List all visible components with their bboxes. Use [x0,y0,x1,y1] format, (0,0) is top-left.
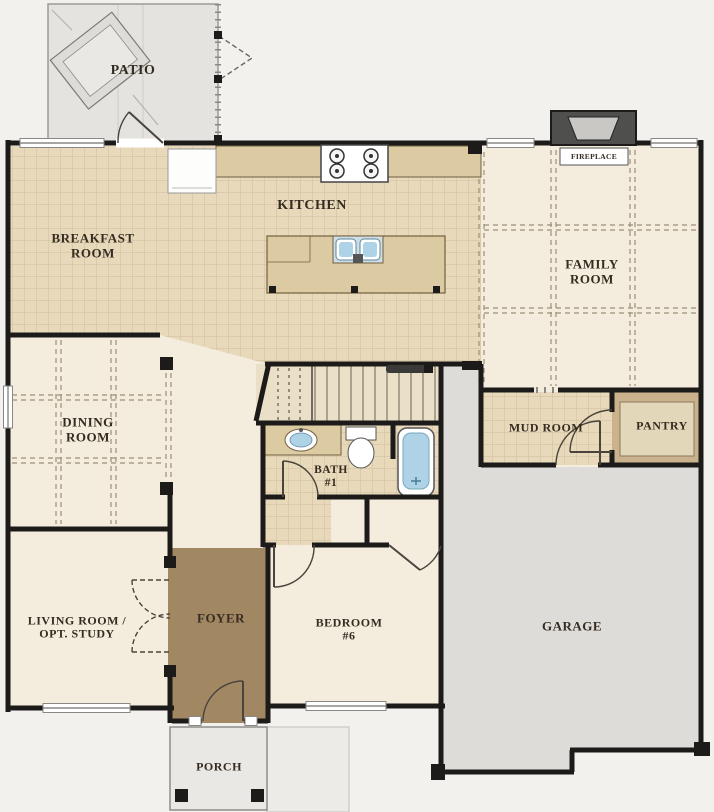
window [43,704,130,713]
room-label-family: FAMILYROOM [565,257,619,286]
bath-hall-floor [261,499,331,545]
room-label-mudroom: MUD ROOM [509,421,583,434]
stove-fixture [321,145,388,182]
room-label-living: LIVING ROOM /OPT. STUDY [28,615,127,642]
room-label-garage: GARAGE [542,620,602,635]
kitchen-island [267,236,445,293]
room-label-fireplace: FIREPLACE [571,153,617,161]
room-label-foyer: FOYER [197,612,245,627]
room-label-dining: DININGROOM [62,415,113,444]
window [651,139,697,148]
porch-column [175,789,188,802]
room-label-bath1: BATH#1 [314,464,348,490]
room-label-breakfast: BREAKFASTROOM [52,231,135,260]
walkway [267,727,349,812]
window [306,702,386,711]
room-label-porch: PORCH [196,760,242,773]
stair-handrail [386,364,433,373]
window [4,386,13,428]
refrigerator-fixture [168,149,216,193]
foyer-floor [168,548,268,723]
floor-plan-drawing [0,0,714,812]
room-label-pantry: PANTRY [636,419,688,432]
floor-plan: PATIO BREAKFASTROOM KITCHEN FAMILYROOM F… [0,0,714,812]
patio-screen-door [219,36,252,80]
bathtub-fixture [398,428,434,496]
kitchen-sink-fixture [333,236,383,263]
room-label-kitchen: KITCHEN [277,198,347,214]
window [20,139,104,148]
toilet-fixture [346,427,376,468]
room-label-bedroom6: BEDROOM#6 [316,617,383,644]
porch-column [251,789,264,802]
window [487,139,534,148]
room-label-patio: PATIO [111,63,156,79]
